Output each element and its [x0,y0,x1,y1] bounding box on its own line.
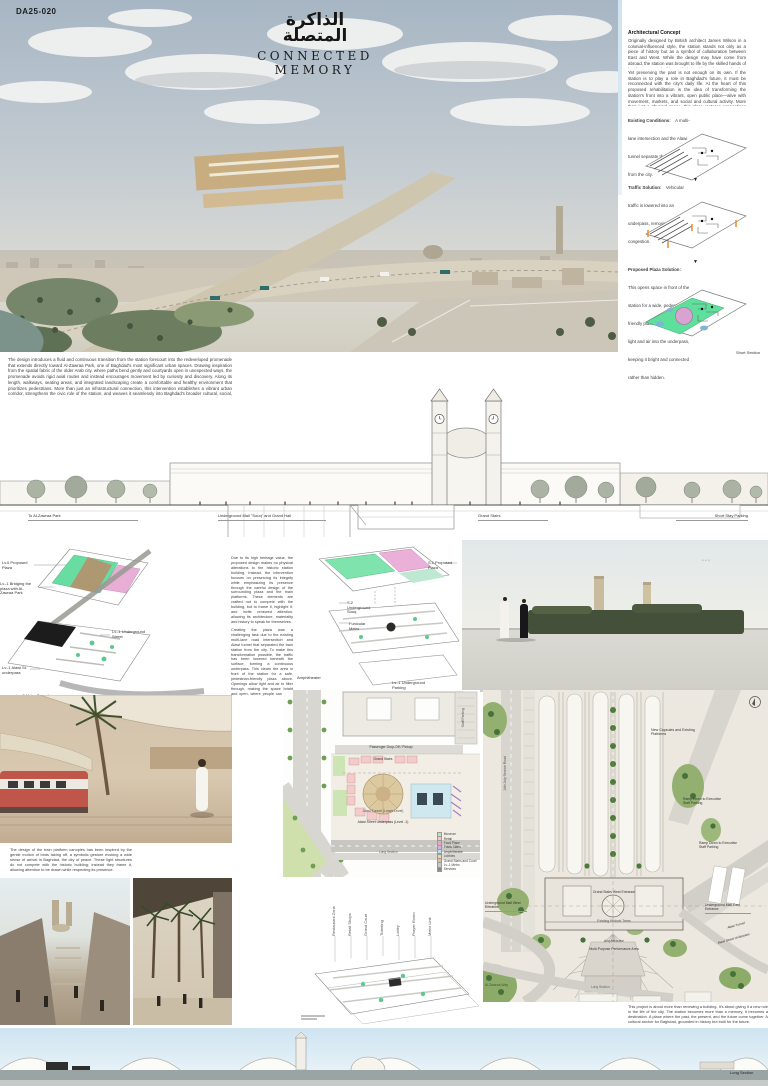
concrete-mass-right [80,912,130,1025]
clock-tower-east [485,389,502,505]
tower-silhouette [52,900,59,926]
plan-label: Underground Mall West Entrance [485,902,527,912]
down-arrow-icon: ▼ [693,177,698,183]
long-section-strip: Long Section [0,1028,768,1086]
narrative-paragraph: Creating the plaza was a challenging tas… [231,628,293,696]
program-label: Prayer Room [411,884,416,936]
program-label: Ticketing [379,884,384,936]
long-section-label: Long Section [730,1071,753,1076]
tower-silhouette [66,902,72,926]
plan-label: Multi-Purpose Performance Area [587,948,641,952]
plan-label: Underground Mall East Entrance [705,904,751,914]
plaza-dome [676,308,693,325]
pedestrian-black-robe [520,604,528,638]
ground-floor-plan: Ground Floor Plan [483,690,768,1002]
closing-statement: This project is about more than renewing… [628,1004,768,1024]
concept-paragraph-2: Yet preserving the past is not enough on… [628,70,746,106]
metro-tunnel [60,683,204,694]
palm-courtyard-photo [133,878,232,1025]
title-block: الذاكرة المتصلة CONNECTED MEMORY [222,12,408,77]
concept-paragraph-1: Originally designed by British architect… [628,38,746,68]
plan-label: Ramp Down to Executive Staff Parking [683,798,723,806]
project-title: CONNECTED MEMORY [222,49,408,77]
plan-label: Grand Stairs [365,758,401,762]
solution-title: Existing Conditions: [628,118,671,123]
program-label: Metro Link [427,884,432,936]
clock-tower-west [431,389,448,505]
minaret-tower [556,206,563,254]
plaza-photo-rendering: ˇ ˇ ˇ [462,540,768,692]
program-axon-diagram: Restaurant Zone Retail Shops Grand Court… [293,884,480,1024]
birds: ˇ ˇ ˇ [702,560,710,566]
solution-title: Proposed Plaza Solution: [628,267,681,272]
short-section-label: Short Section [700,351,760,356]
plan-label: Long Section [591,986,621,990]
platform-caption: The design of the train platform canopie… [10,847,132,873]
program-label: Retail Shops [347,884,352,936]
axon-label: Lv.-1 Alawi St. underpass [2,666,34,675]
plan-label: Grand Stairs West Entrance [591,891,637,895]
program-label: Lobby [395,884,400,936]
station-footprint [343,692,463,736]
pedestrian-white-robe [500,602,509,638]
axon-label: Amphitheater [297,676,327,681]
plan-label: Al-Zawraa Way [485,984,519,988]
axon-label: Funicular Metro [349,622,375,631]
narrative-column: Due to its high heritage value, the prop… [231,556,293,696]
plaza-solution-diagram [640,282,752,340]
underground-section [0,505,768,537]
concept-heading: Architectural Concept [628,30,680,36]
grand-court-dome [387,623,396,632]
train-platform-rendering [0,695,232,843]
plan-label: Alawi Street Underpass (Level -1) [343,821,423,825]
narrative-paragraph: Due to its high heritage value, the prop… [231,556,293,625]
concrete-mass-left [0,918,56,1025]
plan-label: 14th July Service Road [503,756,507,791]
central-dome [441,428,491,458]
dome-building [423,245,443,259]
underground-souq-plan: Underground Souq Level [283,690,480,877]
historic-facade [170,463,620,505]
section-callout: To Al-Zawraa Park [28,514,138,521]
legend-item: Services [437,867,479,871]
board-code: DA25-020 [16,7,56,16]
existing-conditions-diagram [640,126,752,182]
sidebar: Architectural Concept Originally designe… [622,0,768,345]
train-in-section [700,1062,734,1069]
plan-label: Amphitheatre [595,940,633,944]
program-label: Grand Court [363,884,368,936]
train [0,771,88,813]
scale-bar [301,1016,325,1019]
plaza-steps-photo [0,878,130,1025]
plan-label: Passenger Drop-Off / Pickup [341,746,441,750]
staff-parking-strip [455,692,477,744]
souq-plan-legend: Museum Retail Food Place Plaza Stairs Am… [437,832,479,872]
arabic-calligraphy: الذاكرة المتصلة [222,12,408,44]
section-callout: Grand Stairs [478,514,548,521]
bird-wing-canopy [40,695,232,731]
down-arrow-icon: ▼ [693,259,698,265]
plan-label: Existing Historic Trees [589,920,639,924]
section-callout: Underground Mall "Souq" and Grand Hall [218,514,326,521]
axon-label: S.1 Proposed Plaza [428,561,462,570]
plan-label: Ramp Down to Executive Staff Parking [699,842,739,850]
axon-label: Lv.-1 Underground Street [112,630,148,639]
section-callout: Short Stay Parking [676,514,748,521]
axon-label: Lv.-1 Bridging the plaza with Al-Zawraa … [0,582,36,596]
plan-label: Alawi Tunnel (Lower Level) [353,810,413,814]
station-roofs [194,146,347,208]
axon-label: S.2 Underground Souq [347,601,375,615]
plan-label: Staff Parking [461,708,465,727]
section-clock-tower [296,1038,306,1070]
axon-label: Lv.0 Proposed Plaza [2,561,36,570]
program-label: Restaurant Zone [331,884,336,936]
competition-board: DA25-020 الذاكرة المتصلة CONNECTED MEMOR… [0,0,768,1086]
grand-court-dome [363,774,403,814]
traffic-solution-diagram [640,194,752,250]
solution-title: Traffic Solution: [628,185,661,190]
plan-label: Long Section [379,851,398,855]
axon-label: Lv.-1 Underground Parking [392,681,434,690]
legend-chip [437,867,442,872]
plan-label: New Capsules and Existing Platforms [651,728,701,736]
arabic-line-2: المتصلة [222,28,408,44]
